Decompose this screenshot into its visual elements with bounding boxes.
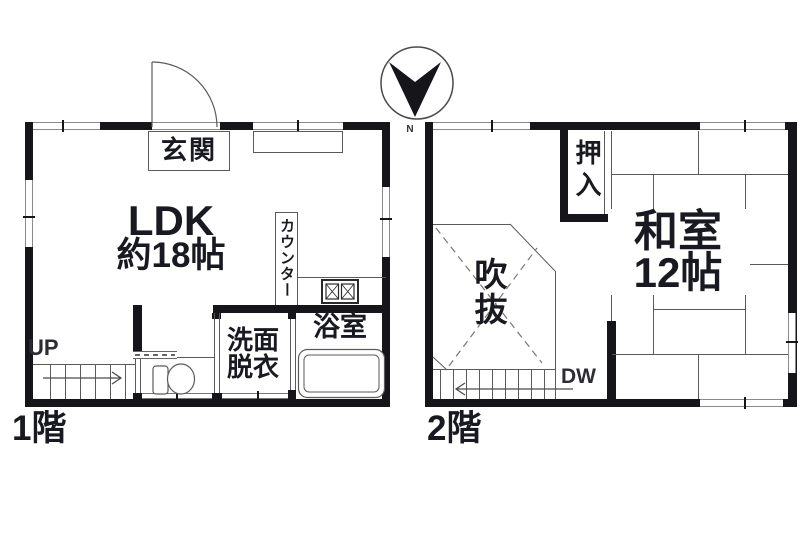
closet-wall-bottom [560, 214, 608, 222]
stairs-top-line [33, 364, 136, 365]
entrance-door-swing-icon [143, 53, 225, 135]
void-label: 吹抜 [472, 257, 505, 327]
bath-divider-line [290, 313, 291, 392]
closet-wall-left [560, 130, 568, 222]
bath-divider-line [295, 313, 296, 392]
window-tick [380, 218, 392, 220]
window-tick [62, 120, 64, 132]
floor-plan: N 玄関 LDK 約18帖 カウンター [0, 0, 810, 540]
wall-post [288, 390, 296, 399]
wall-post [212, 393, 222, 401]
bay-window-ledge [253, 131, 343, 153]
closet-label: 押入 [574, 139, 600, 203]
f1-wall-bottom [25, 399, 390, 407]
window-tick [257, 391, 259, 403]
kitchen-counter-edge [298, 277, 386, 278]
f2-window-top-left [433, 122, 530, 130]
closet-right-line [604, 131, 605, 214]
window-tick [786, 341, 798, 343]
washroom-label-line1: 洗面 [222, 327, 284, 354]
tatami-line [653, 309, 745, 310]
bathroom-label: 浴室 [300, 313, 380, 341]
stairs-top-line [433, 369, 555, 370]
f1-wall-left [25, 122, 33, 407]
f2-stairs-label: DW [561, 366, 596, 388]
stairs-up-arrow-icon [40, 368, 132, 388]
window-tick [744, 397, 746, 409]
window-tick [23, 216, 35, 218]
f2-wall-top-a [530, 122, 700, 130]
japanese-room-size-label: 12帖 [606, 251, 750, 295]
f1-window-top-left [33, 122, 100, 130]
washroom-door-line [219, 313, 220, 397]
washroom-label-line2: 脱衣 [222, 354, 284, 381]
wall-post [288, 313, 296, 319]
entrance-label: 玄関 [148, 137, 230, 164]
stove-icon [321, 279, 359, 305]
north-label: N [400, 125, 420, 136]
f2-wall-bottom-corner [783, 399, 797, 407]
washroom-door-line [214, 313, 215, 397]
f1-window-right [382, 187, 390, 257]
ldk-size-label: 約18帖 [85, 238, 257, 275]
f2-floor-label: 2階 [427, 411, 481, 448]
tatami-line [698, 354, 699, 399]
f1-window-left [25, 180, 33, 247]
f2-wall-stair-side [607, 321, 616, 407]
tatami-line [698, 131, 699, 174]
f2-window-right [788, 313, 796, 373]
bathtub-icon [297, 348, 387, 400]
window-tick [491, 120, 493, 132]
stair-tread [440, 370, 441, 399]
f2-wall-bottom [425, 399, 702, 407]
wall-post [133, 393, 142, 401]
toilet-icon [148, 358, 200, 402]
window-tick [744, 120, 746, 132]
f2-window-bottom [700, 399, 783, 407]
f1-floor-label: 1階 [12, 411, 66, 448]
tatami-line [612, 354, 788, 355]
f1-threshold-washroom [222, 393, 288, 399]
counter-label: カウンター [279, 218, 294, 298]
tatami-line [612, 174, 788, 175]
f1-stairs-label: UP [28, 336, 59, 359]
f2-window-top-right [700, 122, 785, 130]
f1-wall-toilet-left [133, 305, 142, 353]
